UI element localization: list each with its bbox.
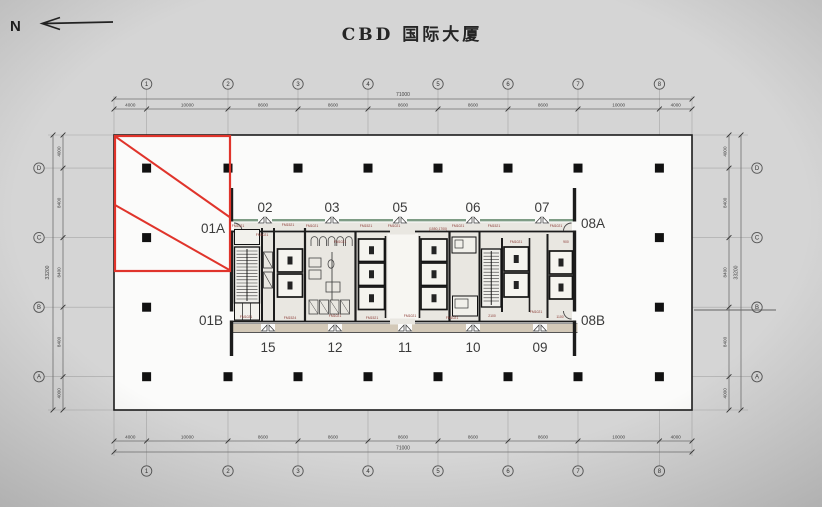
column <box>294 372 303 381</box>
column <box>294 164 303 173</box>
dim-right: 4000 <box>723 146 728 157</box>
dim-total-top: 71000 <box>396 92 410 98</box>
door-tag: FM1021 <box>334 240 347 244</box>
unit-label-02[interactable]: 02 <box>257 200 272 215</box>
unit-label-08B[interactable]: 08B <box>581 313 605 328</box>
dim-bottom: 10000 <box>612 435 625 440</box>
dim-top: 4000 <box>671 103 682 108</box>
column <box>504 164 513 173</box>
column <box>655 233 664 242</box>
door-tag: FM1021 <box>240 315 253 319</box>
stair-vestibule <box>235 230 260 245</box>
dim-top: 8600 <box>258 103 269 108</box>
dim-right: 4000 <box>723 388 728 399</box>
column <box>434 372 443 381</box>
unit-label-09[interactable]: 09 <box>532 340 547 355</box>
dim-right: 8400 <box>723 197 728 208</box>
dim-bottom: 8600 <box>538 435 549 440</box>
dim-bottom: 8600 <box>468 435 479 440</box>
door-tag: 900 <box>563 240 569 244</box>
door-tag: 1100 <box>556 315 563 319</box>
grid-bubble-left-A: A <box>37 375 41 381</box>
column <box>574 164 583 173</box>
dim-top: 10000 <box>612 103 625 108</box>
unit-label-01A[interactable]: 01A <box>201 221 225 236</box>
dim-top: 10000 <box>181 103 194 108</box>
column <box>224 164 233 173</box>
lobby-opening <box>390 319 415 325</box>
column <box>655 372 664 381</box>
dim-left: 8400 <box>57 336 62 347</box>
door-tag: FM1021 <box>256 233 269 237</box>
unit-label-12[interactable]: 12 <box>327 340 342 355</box>
grid-bubble-right-B: B <box>755 305 759 311</box>
dim-total-bottom: 71000 <box>396 446 410 452</box>
unit-label-01B[interactable]: 01B <box>199 313 223 328</box>
dim-top: 8600 <box>468 103 479 108</box>
column <box>655 303 664 312</box>
elevator-cab <box>369 246 374 254</box>
elevator-cab <box>432 294 437 302</box>
elevator-lobby <box>388 234 419 320</box>
door-notch <box>229 312 234 321</box>
door-tag: FM1021 <box>306 224 319 228</box>
door-tag: FM1021 <box>329 314 342 318</box>
column <box>655 164 664 173</box>
elevator-cab <box>559 259 564 267</box>
dim-bottom: 4000 <box>125 435 136 440</box>
unit-label-08A[interactable]: 08A <box>581 216 605 231</box>
unit-label-07[interactable]: 07 <box>534 200 549 215</box>
dim-left: 4000 <box>57 146 62 157</box>
dim-total-left: 33200 <box>45 265 51 279</box>
unit-label-06[interactable]: 06 <box>465 200 480 215</box>
door-tag: FM1021 <box>452 224 465 228</box>
unit-label-05[interactable]: 05 <box>392 200 407 215</box>
dim-bottom: 8600 <box>398 435 409 440</box>
grid-bubble-left-D: D <box>37 166 42 172</box>
elevator-cab <box>432 246 437 254</box>
column <box>224 372 233 381</box>
door-tag: FM1021 <box>510 240 523 244</box>
dim-right: 8400 <box>723 336 728 347</box>
unit-label-03[interactable]: 03 <box>324 200 339 215</box>
column <box>434 164 443 173</box>
north-label: N <box>10 18 21 35</box>
dim-left: 8400 <box>57 267 62 278</box>
dim-left: 4000 <box>57 388 62 399</box>
dim-left: 8400 <box>57 197 62 208</box>
page-title: CBD 国际大厦 <box>342 24 483 45</box>
grid-bubble-left-C: C <box>37 236 42 242</box>
column <box>142 372 151 381</box>
elevator-cab <box>369 294 374 302</box>
dim-bottom: 8600 <box>258 435 269 440</box>
dim-top: 8600 <box>538 103 549 108</box>
column <box>504 372 513 381</box>
door-tag: FM1021 <box>446 316 459 320</box>
grid-bubble-right-D: D <box>755 166 760 172</box>
grid-bubble-left-B: B <box>37 305 41 311</box>
dim-top: 8600 <box>328 103 339 108</box>
column <box>142 303 151 312</box>
column <box>364 372 373 381</box>
door-tag: FM1521 <box>366 316 379 320</box>
door-tag: FM1021 <box>388 224 401 228</box>
door-tag: FM1524 <box>284 316 297 320</box>
door-tag: 2100 <box>488 314 496 318</box>
column <box>364 164 373 173</box>
lobby-opening <box>390 229 415 235</box>
elevator-cab <box>288 282 293 290</box>
unit-label-10[interactable]: 10 <box>465 340 480 355</box>
elevator-cab <box>514 255 519 263</box>
door-tag: FM1521 <box>488 224 501 228</box>
dim-bottom: 4000 <box>671 435 682 440</box>
column <box>142 164 151 173</box>
equipment-box <box>452 237 476 253</box>
elevator-cab <box>514 281 519 289</box>
unit-label-15[interactable]: 15 <box>260 340 275 355</box>
dim-bottom: 10000 <box>181 435 194 440</box>
door-notch <box>572 222 577 231</box>
dim-right: 8400 <box>723 267 728 278</box>
door-tag: FM1021 <box>530 310 543 314</box>
door-tag: FM1021 <box>404 314 417 318</box>
dim-top: 4000 <box>125 103 136 108</box>
door-tag: FM1521 <box>282 223 295 227</box>
dim-total-right: 33200 <box>734 265 740 279</box>
door-tag: (1550,1700) <box>429 227 447 231</box>
elevator-cab <box>559 284 564 292</box>
door-tag: FM1021 <box>550 224 563 228</box>
door-tag: FM1521 <box>360 224 373 228</box>
door-tag: FM1021 <box>232 224 245 228</box>
column <box>574 372 583 381</box>
column <box>142 233 151 242</box>
dim-bottom: 8600 <box>328 435 339 440</box>
elevator-cab <box>369 270 374 278</box>
grid-bubble-right-A: A <box>755 375 759 381</box>
elevator-cab <box>432 270 437 278</box>
door-notch <box>572 312 577 321</box>
dim-top: 8600 <box>398 103 409 108</box>
grid-bubble-right-C: C <box>755 236 760 242</box>
unit-label-11[interactable]: 11 <box>398 340 412 355</box>
elevator-cab <box>288 257 293 265</box>
floor-plan-sheet: 7100040001000086008600860086008600100004… <box>0 0 822 507</box>
